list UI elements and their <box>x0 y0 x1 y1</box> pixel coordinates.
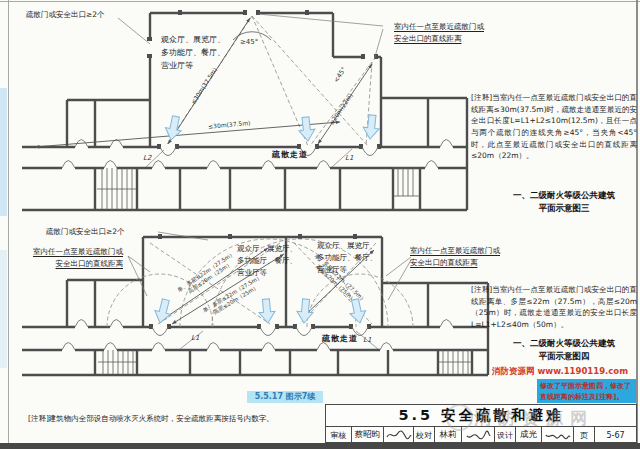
d3-corridor-label: 疏散走道 <box>272 150 316 161</box>
diagram3-door-arcs <box>62 140 453 169</box>
title-block: 5.5 安全疏散和避难 审核 蔡昭昀 校对 林莉 设计 成光 页 5-67 <box>325 404 637 443</box>
site-credit: 消防资源网 www.1190119.com <box>492 366 640 378</box>
d4-segment-l1-left: L1 <box>191 334 199 342</box>
d3-angle-min-label: ≥45° <box>240 38 268 46</box>
title-block-signature-row: 审核 蔡昭昀 校对 林莉 设计 成光 页 5-67 <box>326 427 636 443</box>
d4-corridor-label: 疏散走道 <box>322 334 366 345</box>
diagram4-stairs <box>98 350 472 375</box>
d4-segment-l1-right: L1 <box>363 336 371 344</box>
d4-distance-label-left: 室内任一点至最近疏散门或 安全出口的直线距离 <box>29 246 123 269</box>
signature-scribble <box>545 429 571 441</box>
d4-note: [注释]当室内任一点至最近疏散门或安全出口的直线距离单、多层≤22m（27.5m… <box>471 284 637 331</box>
section-title: 5.5 安全疏散和避难 <box>326 405 636 427</box>
d3-caption: 一、二级耐火等级公共建筑 平面示意图三 <box>488 189 640 215</box>
d3-note: [注释]当室内任一点至最近疏散门或安全出口的直线距离≤30m(37.5m)时，疏… <box>471 92 637 162</box>
check-label: 校对 <box>413 427 434 443</box>
d3-segment-l2: L2 <box>143 154 151 162</box>
signature-scribble <box>386 429 412 441</box>
sprinkler-note: [注释]建筑物内全部设自动喷水灭火系统时，安全疏散距离按括号内数字。 <box>28 414 348 424</box>
review-label: 审核 <box>326 427 351 443</box>
d4-rooms-label-left: 观众厅、展览厅、 多功能厅、餐厅、 营业厅等 <box>237 243 303 279</box>
page-number: 5-67 <box>594 427 636 443</box>
d3-distance-label: 室内任一点至最近疏散门或 安全出口的直线距离 <box>394 21 500 45</box>
page-label: 页 <box>573 427 594 443</box>
review-name: 蔡昭昀 <box>351 427 383 443</box>
signature-scribble <box>465 429 491 441</box>
check-name: 林莉 <box>434 427 461 443</box>
d4-exits-label: 疏散门或安全出口≥2个 <box>46 227 166 237</box>
d3-exits-label: 疏散门或安全出口≥2个 <box>26 10 146 20</box>
diagram3-exit-arrows <box>163 114 380 142</box>
check-signature <box>461 427 494 443</box>
code-atlas-page: { "colors": { "wall": "#4d4d4d", "highli… <box>0 0 640 449</box>
figure-reference-tag: 5.5.17 图示7续 <box>247 391 323 403</box>
design-label: 设计 <box>494 427 515 443</box>
d4-distance-label-right: 室内任一点至最近疏散门或 安全出口的直线距离 <box>410 245 516 269</box>
diagram4-exit-arrows <box>152 298 368 325</box>
diagram3-stairs <box>97 168 420 210</box>
review-signature <box>383 427 413 443</box>
design-signature <box>541 427 573 443</box>
d4-caption: 一、二级耐火等级公共建筑 平面示意图四 <box>488 337 640 363</box>
revision-badge: 修改了平面示意图四，修改了直线距离的标注及[注释]。 <box>537 379 636 403</box>
design-name: 成光 <box>515 427 541 443</box>
d3-segment-l1: L1 <box>345 154 353 162</box>
